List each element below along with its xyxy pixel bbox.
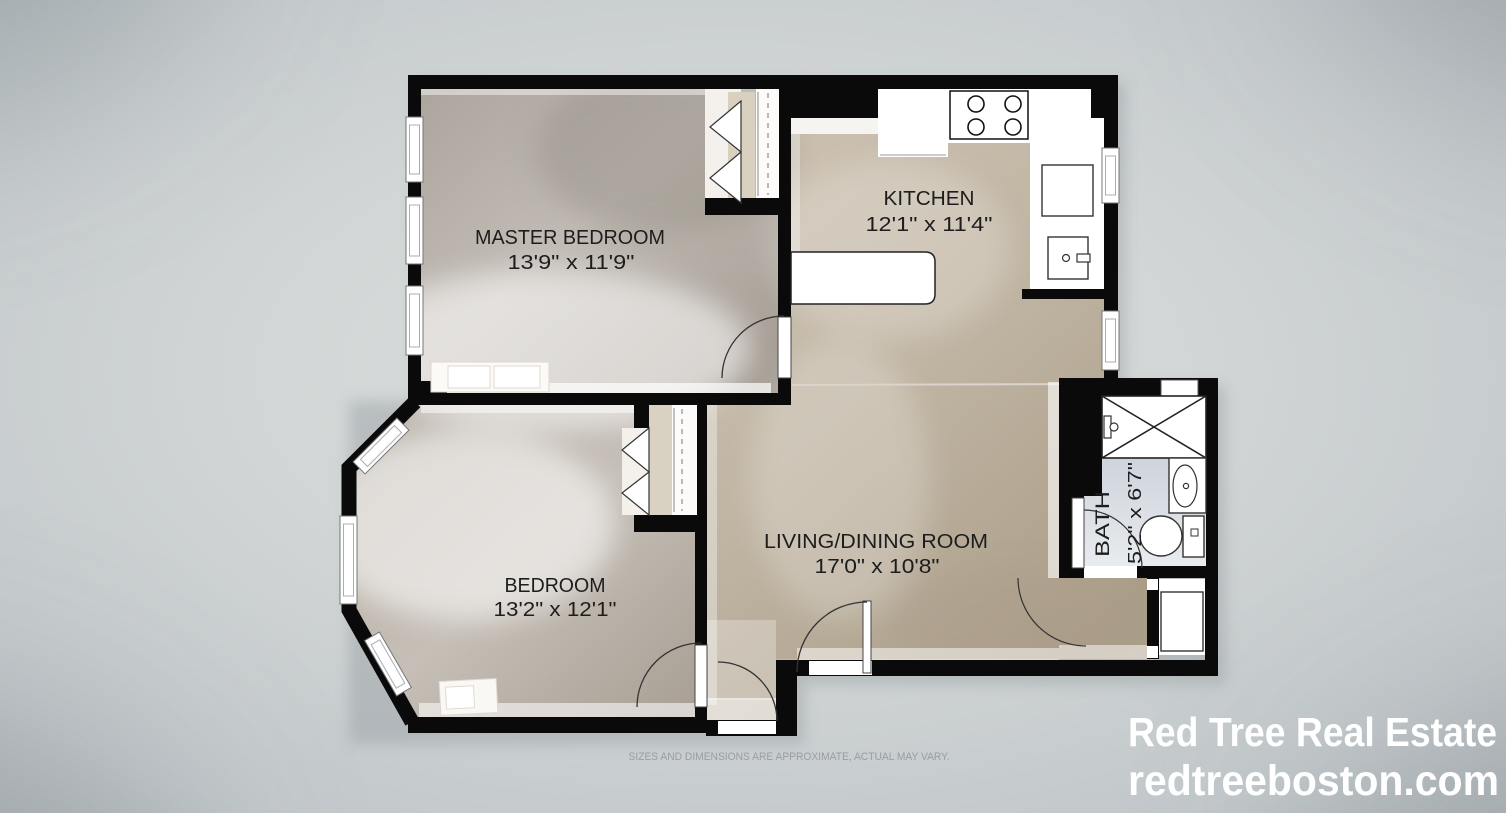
svg-text:LIVING/DINING ROOM: LIVING/DINING ROOM (764, 531, 988, 553)
svg-text:KITCHEN: KITCHEN (884, 188, 975, 210)
svg-text:MASTER BEDROOM: MASTER BEDROOM (475, 227, 665, 249)
svg-text:13'9" x 11'9": 13'9" x 11'9" (508, 252, 635, 274)
svg-text:redtreeboston.com: redtreeboston.com (1128, 757, 1499, 805)
svg-text:BEDROOM: BEDROOM (505, 575, 606, 597)
svg-text:13'2" x 12'1": 13'2" x 12'1" (494, 599, 617, 621)
svg-text:12'1" x 11'4": 12'1" x 11'4" (866, 214, 993, 236)
svg-text:BATH: BATH (1093, 491, 1114, 557)
svg-text:SIZES AND DIMENSIONS ARE APPRO: SIZES AND DIMENSIONS ARE APPROXIMATE, AC… (629, 751, 950, 763)
svg-text:17'0" x 10'8": 17'0" x 10'8" (815, 556, 940, 578)
svg-text:5'2" x 6'7": 5'2" x 6'7" (1125, 462, 1145, 564)
svg-text:Red Tree Real Estate: Red Tree Real Estate (1128, 709, 1497, 755)
